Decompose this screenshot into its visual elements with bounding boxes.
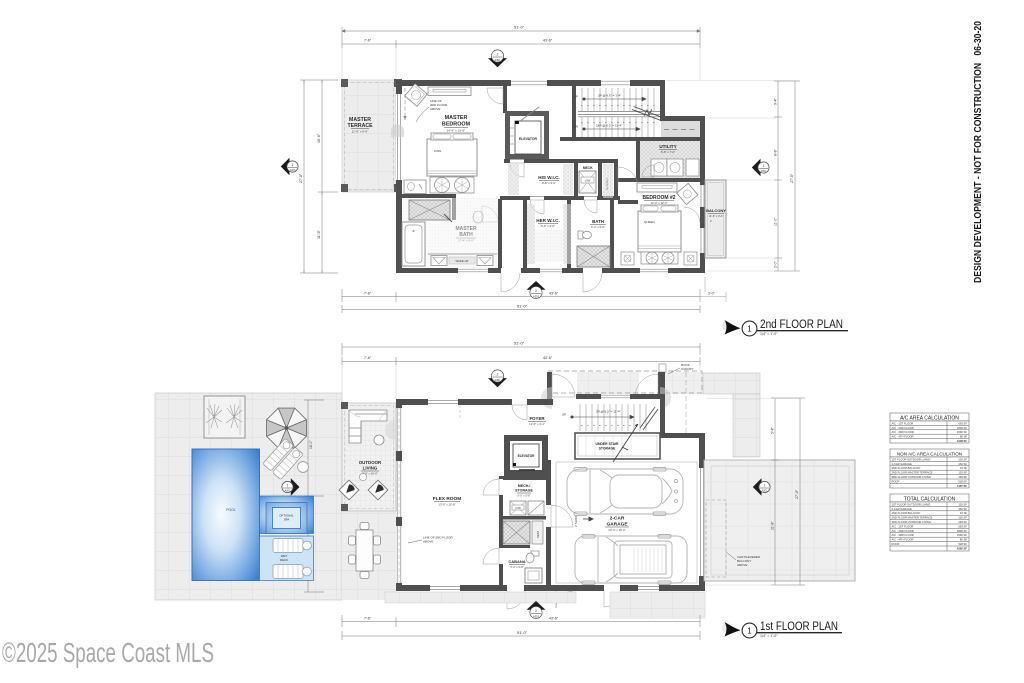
svg-text:A301: A301	[762, 490, 768, 493]
svg-text:A/C - 2ND FLOOR: A/C - 2ND FLOOR	[892, 529, 914, 533]
svg-text:51'-0": 51'-0"	[514, 341, 525, 346]
svg-text:4395 SF: 4395 SF	[957, 546, 968, 550]
svg-text:23'-4" x 19'-0": 23'-4" x 19'-0"	[608, 528, 625, 532]
svg-text:UP: UP	[562, 413, 566, 417]
svg-text:7'-6": 7'-6"	[364, 39, 372, 43]
svg-text:2ND FLOOR BALCONY: 2ND FLOOR BALCONY	[892, 511, 921, 515]
svg-text:2ND FLOOR MASTER TERRACE: 2ND FLOOR MASTER TERRACE	[892, 516, 933, 520]
svg-text:1809 SF: 1809 SF	[957, 426, 968, 430]
svg-text:51'-0": 51'-0"	[517, 304, 528, 309]
svg-text:DECK: DECK	[280, 558, 288, 562]
svg-text:5'-0" x 5'-8": 5'-0" x 5'-8"	[517, 494, 530, 498]
svg-text:CABANA: CABANA	[508, 559, 525, 564]
svg-text:1st FLOOR PLAN: 1st FLOOR PLAN	[760, 619, 838, 633]
svg-text:A/C - 1ST FLOOR: A/C - 1ST FLOOR	[892, 524, 914, 528]
svg-text:1: 1	[292, 163, 294, 167]
svg-text:86 SF: 86 SF	[960, 538, 968, 542]
svg-text:UP: UP	[574, 95, 578, 99]
svg-text:2R @ 6.5" = 1'-4": 2R @ 6.5" = 1'-4"	[598, 94, 621, 98]
svg-text:ABOVE: ABOVE	[737, 563, 747, 567]
svg-text:A/C - 3RD FLOOR: A/C - 3RD FLOOR	[892, 533, 914, 537]
svg-text:2R @ 6.5" = 11'-4": 2R @ 6.5" = 11'-4"	[596, 410, 621, 414]
svg-text:86 SF: 86 SF	[960, 435, 968, 439]
svg-text:UTILITY: UTILITY	[659, 144, 676, 149]
svg-text:663 SF: 663 SF	[958, 524, 967, 528]
svg-text:16'-0": 16'-0"	[309, 440, 313, 449]
svg-text:OUTDOOR: OUTDOOR	[359, 460, 382, 465]
svg-text:1ST FLOOR OUTDOOR LIVING: 1ST FLOOR OUTDOOR LIVING	[892, 502, 931, 506]
svg-text:2: 2	[497, 53, 499, 57]
svg-text:462 SF: 462 SF	[958, 462, 967, 466]
svg-text:12'-0" x 4'-4": 12'-0" x 4'-4"	[529, 422, 545, 426]
svg-text:A303: A303	[290, 169, 296, 172]
svg-text:1590 SF: 1590 SF	[957, 533, 968, 537]
svg-text:27'-0": 27'-0"	[790, 173, 794, 183]
svg-text:2ND FLOOR BALCONY: 2ND FLOOR BALCONY	[892, 466, 921, 470]
svg-text:1/4" = 1'-0": 1/4" = 1'-0"	[760, 634, 778, 638]
svg-text:11'-6": 11'-6"	[317, 229, 321, 239]
svg-text:ELEVATOR: ELEVATOR	[519, 137, 537, 141]
svg-text:A/C - 1ST FLOOR: A/C - 1ST FLOOR	[892, 421, 914, 425]
svg-text:A302: A302	[533, 295, 540, 299]
svg-text:5'-0" x 9'-8": 5'-0" x 9'-8"	[510, 565, 523, 569]
svg-text:2'-0": 2'-0"	[774, 260, 778, 268]
svg-text:2: 2	[497, 373, 499, 377]
svg-text:2-CAR: 2-CAR	[610, 516, 625, 522]
svg-text:18R @ 6.5" = 11'-4": 18R @ 6.5" = 11'-4"	[596, 124, 622, 128]
svg-text:UNDER STAIR: UNDER STAIR	[596, 442, 619, 446]
svg-text:3RD FLOOR OUTDOOR LIVING: 3RD FLOOR OUTDOOR LIVING	[892, 475, 931, 479]
svg-text:A/C - 4TH FLOOR: A/C - 4TH FLOOR	[892, 538, 914, 542]
svg-text:A302: A302	[533, 615, 540, 619]
svg-text:1/4" = 1'-0": 1/4" = 1'-0"	[760, 332, 778, 336]
svg-text:6'-4" x 9'-0": 6'-4" x 9'-0"	[591, 225, 605, 229]
svg-text:3RD FLOOR OUTDOOR LIVING: 3RD FLOOR OUTDOOR LIVING	[892, 520, 931, 524]
svg-text:27'-0": 27'-0"	[299, 173, 303, 183]
svg-text:1457 SF: 1457 SF	[957, 484, 968, 488]
svg-text:©2025 Space Coast MLS: ©2025 Space Coast MLS	[2, 637, 214, 668]
svg-text:HIS W.I.C.: HIS W.I.C.	[538, 175, 559, 180]
svg-text:LOW: LOW	[585, 180, 591, 183]
svg-text:4148 SF: 4148 SF	[957, 439, 968, 443]
svg-text:120 SF: 120 SF	[958, 457, 967, 461]
svg-text:ABOVE: ABOVE	[430, 107, 440, 111]
svg-text:1: 1	[747, 626, 752, 635]
svg-text:5'-4": 5'-4"	[771, 426, 775, 434]
svg-text:LIVING: LIVING	[363, 466, 378, 471]
svg-text:7'-6": 7'-6"	[364, 617, 372, 621]
svg-text:14'-6" x 15'-6": 14'-6" x 15'-6"	[447, 129, 465, 133]
svg-text:2: 2	[535, 609, 537, 613]
svg-text:1: 1	[747, 324, 752, 333]
svg-text:CANOPY: CANOPY	[681, 367, 694, 371]
svg-text:13'-6" x 25'-8": 13'-6" x 25'-8"	[438, 503, 455, 507]
svg-text:43'-6": 43'-6"	[549, 292, 559, 296]
svg-text:1809 SF: 1809 SF	[957, 529, 968, 533]
svg-text:QUEEN: QUEEN	[644, 220, 655, 224]
svg-text:SPA: SPA	[284, 518, 290, 522]
svg-text:2' SLOPE: 2' SLOPE	[574, 515, 578, 527]
svg-text:2nd FLOOR PLAN: 2nd FLOOR PLAN	[760, 317, 843, 331]
svg-text:12'-0" x 12'-0": 12'-0" x 12'-0"	[650, 201, 667, 205]
svg-text:ROOF: ROOF	[892, 542, 900, 546]
svg-text:2-CAR GARAGE: 2-CAR GARAGE	[892, 462, 913, 466]
svg-text:11'-6" x 9'-6": 11'-6" x 9'-6"	[352, 130, 369, 134]
svg-text:120 SF: 120 SF	[958, 516, 967, 520]
svg-text:A/C - 3RD FLOOR: A/C - 3RD FLOOR	[892, 430, 914, 434]
svg-text:DESIGN DEVELOPMENT - NOT FOR C: DESIGN DEVELOPMENT - NOT FOR CONSTRUCTIO…	[973, 21, 984, 283]
svg-text:FOYER: FOYER	[529, 416, 545, 421]
svg-text:TOTAL CALCULATION: TOTAL CALCULATION	[904, 496, 956, 502]
svg-text:663 SF: 663 SF	[958, 421, 967, 425]
svg-text:11'-8" x 3'-4": 11'-8" x 3'-4"	[709, 214, 723, 218]
svg-text:2ND FLOOR MASTER TERRACE: 2ND FLOOR MASTER TERRACE	[892, 471, 933, 475]
svg-text:6'-8" x 7'-2": 6'-8" x 7'-2"	[661, 150, 675, 154]
svg-text:27'-0": 27'-0"	[795, 489, 799, 499]
svg-text:A301: A301	[494, 378, 501, 382]
svg-text:194 SF: 194 SF	[958, 520, 967, 524]
svg-text:16'-6": 16'-6"	[317, 133, 321, 143]
svg-text:A/C - 2ND FLOOR: A/C - 2ND FLOOR	[892, 426, 914, 430]
svg-text:KING: KING	[434, 149, 442, 153]
svg-text:2-CAR GARAGE: 2-CAR GARAGE	[892, 507, 913, 511]
svg-text:ELEVATOR: ELEVATOR	[518, 454, 536, 458]
svg-text:120 SF: 120 SF	[958, 471, 967, 475]
svg-text:8'-6" x 9'-0": 8'-6" x 9'-0"	[542, 181, 556, 185]
svg-text:GARAGE: GARAGE	[606, 522, 628, 528]
svg-text:1: 1	[763, 164, 765, 168]
svg-text:7'-6": 7'-6"	[364, 292, 372, 296]
svg-text:A301: A301	[494, 58, 501, 62]
svg-text:43'-6": 43'-6"	[543, 39, 553, 43]
svg-text:NON A/C AREA CALCULATION: NON A/C AREA CALCULATION	[897, 451, 962, 456]
svg-text:1ST FLOOR OUTDOOR LIVING: 1ST FLOOR OUTDOOR LIVING	[892, 457, 931, 461]
svg-text:528 SF: 528 SF	[958, 542, 967, 546]
svg-text:WAKE-UP: WAKE-UP	[456, 259, 469, 263]
svg-text:21'-8": 21'-8"	[771, 521, 775, 530]
svg-text:2: 2	[535, 289, 537, 293]
svg-text:BATH: BATH	[592, 219, 604, 224]
svg-text:FLEX ROOM: FLEX ROOM	[433, 496, 462, 502]
svg-text:A301: A301	[761, 170, 767, 173]
svg-text:1: 1	[764, 484, 766, 488]
svg-text:MASTER: MASTER	[445, 115, 468, 121]
svg-text:STORAGE: STORAGE	[599, 447, 616, 451]
svg-text:6'-6" x 9'-0": 6'-6" x 9'-0"	[541, 224, 555, 228]
svg-text:STORAGE: STORAGE	[515, 489, 533, 493]
svg-text:9'-4": 9'-4"	[774, 97, 778, 105]
svg-text:ABOVE: ABOVE	[423, 540, 433, 544]
svg-text:120 SF: 120 SF	[958, 502, 967, 506]
svg-text:MECH./: MECH./	[518, 484, 531, 488]
svg-text:1590 SF: 1590 SF	[957, 430, 968, 434]
svg-text:3'-0": 3'-0"	[708, 292, 716, 296]
svg-text:A/C - 4TH FLOOR: A/C - 4TH FLOOR	[892, 435, 914, 439]
svg-text:51'-0": 51'-0"	[517, 630, 528, 635]
svg-text:LOW: LOW	[515, 507, 521, 510]
svg-text:528 SF: 528 SF	[958, 479, 967, 483]
svg-text:A/C AREA CALCULATION: A/C AREA CALCULATION	[900, 415, 959, 421]
svg-text:43'-6": 43'-6"	[543, 356, 553, 360]
svg-text:TERRACE: TERRACE	[347, 123, 373, 129]
svg-text:1: 1	[287, 484, 289, 488]
svg-text:462 SF: 462 SF	[958, 507, 967, 511]
svg-text:43'-6": 43'-6"	[549, 617, 559, 621]
svg-text:DN: DN	[574, 125, 578, 129]
svg-text:SEAT: SEAT	[536, 531, 540, 538]
svg-text:8'-8": 8'-8"	[774, 148, 778, 156]
svg-text:ROOF: ROOF	[892, 479, 900, 483]
svg-text:HER W.I.C.: HER W.I.C.	[536, 218, 559, 223]
svg-text:11'-0": 11'-0"	[774, 217, 778, 226]
svg-text:MECH.: MECH.	[583, 166, 593, 170]
svg-text:POOL: POOL	[226, 508, 236, 512]
svg-text:BALCONY: BALCONY	[706, 208, 726, 213]
svg-text:BEDROOM: BEDROOM	[442, 122, 471, 128]
svg-text:33 SF: 33 SF	[960, 511, 968, 515]
svg-text:A302: A302	[285, 490, 291, 493]
svg-text:33 SF: 33 SF	[960, 466, 968, 470]
svg-text:194 SF: 194 SF	[958, 475, 967, 479]
svg-text:7'-6": 7'-6"	[364, 356, 372, 360]
svg-text:51'-0": 51'-0"	[514, 25, 525, 30]
